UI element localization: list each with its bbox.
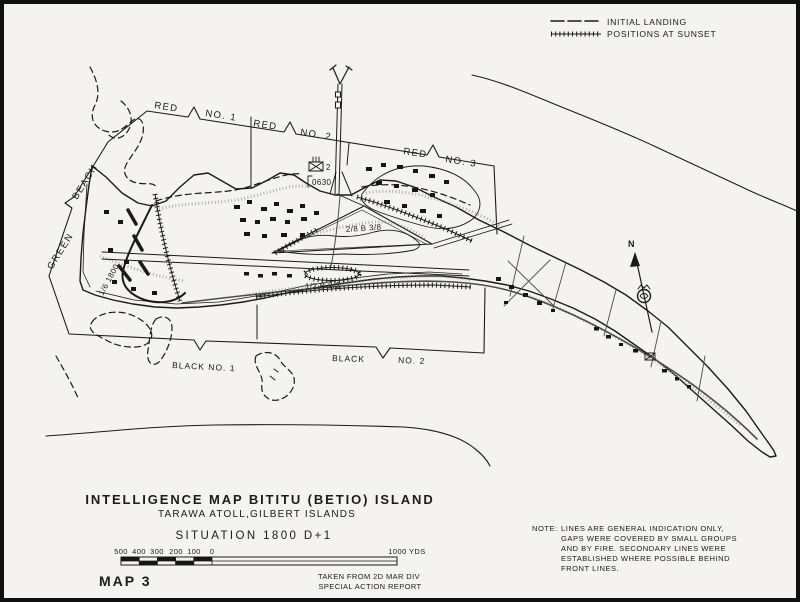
- red-beach-2-number: NO. 2: [300, 127, 333, 143]
- scale-tick-300: 300: [150, 547, 164, 556]
- scale-right-label: 1000 YDS: [388, 547, 425, 556]
- title-block: INTELLIGENCE MAP BITITU (BETIO) ISLAND T…: [85, 492, 434, 591]
- note-block: NOTE: LINES ARE GENERAL INDICATION ONLY,…: [532, 524, 737, 573]
- note-prefix: NOTE:: [532, 524, 558, 533]
- note-line-5: FRONT LINES.: [561, 564, 619, 573]
- west-unit-time-label: 1/6 1800: [97, 262, 121, 297]
- black-beach-1-label: BLACK NO. 1: [172, 360, 236, 373]
- pier: [330, 65, 352, 196]
- map-number: MAP 3: [99, 573, 152, 589]
- map-subtitle: TARAWA ATOLL,GILBERT ISLANDS: [158, 509, 356, 520]
- black-beach-2-word: BLACK: [332, 353, 365, 364]
- scale-tick-400: 400: [132, 547, 146, 556]
- airfield-units-label: 2/8 B 3/8: [346, 223, 382, 234]
- legend-initial-landing-label: INITIAL LANDING: [607, 17, 687, 27]
- red-beach-3-number: NO. 3: [445, 154, 478, 170]
- map-title: INTELLIGENCE MAP BITITU (BETIO) ISLAND: [85, 492, 434, 507]
- red-beach-1-number: NO. 1: [205, 108, 238, 124]
- note-line-3: AND BY FIRE. SECONDARY LINES WERE: [561, 544, 726, 553]
- scale-tick-200: 200: [169, 547, 183, 556]
- red-beach-3-word: RED: [403, 146, 429, 161]
- north-arrow: [630, 252, 652, 332]
- pier-landing-time: 0630: [312, 178, 332, 187]
- south-units-label: 1/2 B 2/2: [305, 281, 341, 291]
- green-beach-word2: BEACH: [70, 162, 100, 202]
- beach-bracket-lines: [49, 107, 497, 358]
- pier-battalion-number: 2: [326, 163, 331, 172]
- situation-label: SITUATION 1800 D+1: [175, 530, 332, 542]
- green-beach-word1: GREEN: [45, 231, 76, 271]
- reef-line-northeast: [472, 75, 800, 213]
- note-line-1: LINES ARE GENERAL INDICATION ONLY,: [561, 524, 724, 533]
- island-outline: [80, 166, 776, 457]
- north-label: N: [628, 239, 635, 249]
- scale-tick-0: 0: [210, 547, 215, 556]
- scale-tick-500: 500: [114, 547, 128, 556]
- scale-bar: 500 400 300 200 100 0 1000 YDS: [114, 547, 425, 565]
- map-canvas: INITIAL LANDING POSITIONS AT SUNSET RED …: [4, 4, 800, 602]
- initial-landing-dashed-lines: [56, 67, 470, 400]
- credit-line-1: TAKEN FROM 2D MAR DIV: [318, 572, 420, 581]
- note-line-4: ESTABLISHED WHERE POSSIBLE BEHIND: [561, 554, 730, 563]
- roads: [122, 196, 757, 439]
- credit-line-2: SPECIAL ACTION REPORT: [318, 582, 421, 591]
- intelligence-map-page: INITIAL LANDING POSITIONS AT SUNSET RED …: [0, 0, 800, 602]
- reef-line-south: [46, 425, 490, 466]
- legend-sunset-label: POSITIONS AT SUNSET: [607, 29, 716, 39]
- scale-tick-100: 100: [187, 547, 201, 556]
- red-beach-2-word: RED: [253, 118, 279, 133]
- map-legend: INITIAL LANDING POSITIONS AT SUNSET: [551, 17, 716, 39]
- black-beach-2-number: NO. 2: [398, 355, 426, 366]
- note-line-2: GAPS WERE COVERED BY SMALL GROUPS: [561, 534, 737, 543]
